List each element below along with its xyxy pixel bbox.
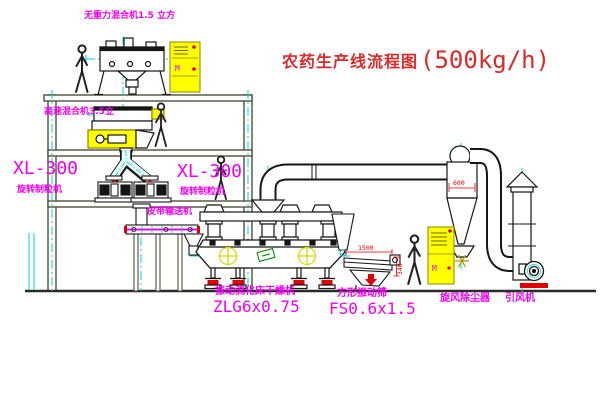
drawing-title: 农药生产线流程图 (500kg/h) [282,46,550,74]
label-cyclone: 旋风除尘器 [440,294,490,304]
label-dryer-name: 振动流化床干燥机 [215,287,295,297]
exhaust-duct [268,165,448,202]
label-granulator-center-name: 旋转制粒机 [180,188,225,197]
granulator-right [131,176,171,202]
title-capacity: (500kg/h) [420,46,550,74]
label-granulator-left-name: 旋转制粒机 [17,186,62,195]
label-dryer-model: ZLG6x0.75 [213,299,300,315]
cyclone-dim-text: 600 [453,179,465,187]
person-figure-top-floor [76,45,88,92]
label-sieve-model: FS0.6x1.5 [329,301,416,317]
sieve-length-dim: 1500 [358,244,374,252]
cabinet2-symbol: M [432,264,437,273]
person-figure-ground [408,235,420,284]
fluid-bed-dryer-drawing [196,200,345,289]
control-cabinet-2: M [428,227,454,284]
process-flow-drawing: M [0,0,600,403]
sieve-height-dim: 340 [396,263,404,275]
label-sieve-name: 方形振动筛 [337,289,387,299]
granulator-left [95,176,135,202]
label-gravity-mixer: 无重力混合机1.5 立方 [84,12,175,21]
control-cabinet-1: M [170,42,200,92]
label-belt-conveyor: 皮带输送机 [147,208,192,217]
label-fan: 引风机 [505,294,535,304]
cabinet1-symbol: M [175,64,180,73]
label-granulator-center-model: XL-300 [177,163,242,181]
label-granulator-left-model: XL-300 [13,160,78,178]
label-high-speed-mixer: 高速混合机3.5立 [44,108,114,117]
gravity-mixer-drawing [94,38,171,95]
title-chinese: 农药生产线流程图 [282,48,418,72]
